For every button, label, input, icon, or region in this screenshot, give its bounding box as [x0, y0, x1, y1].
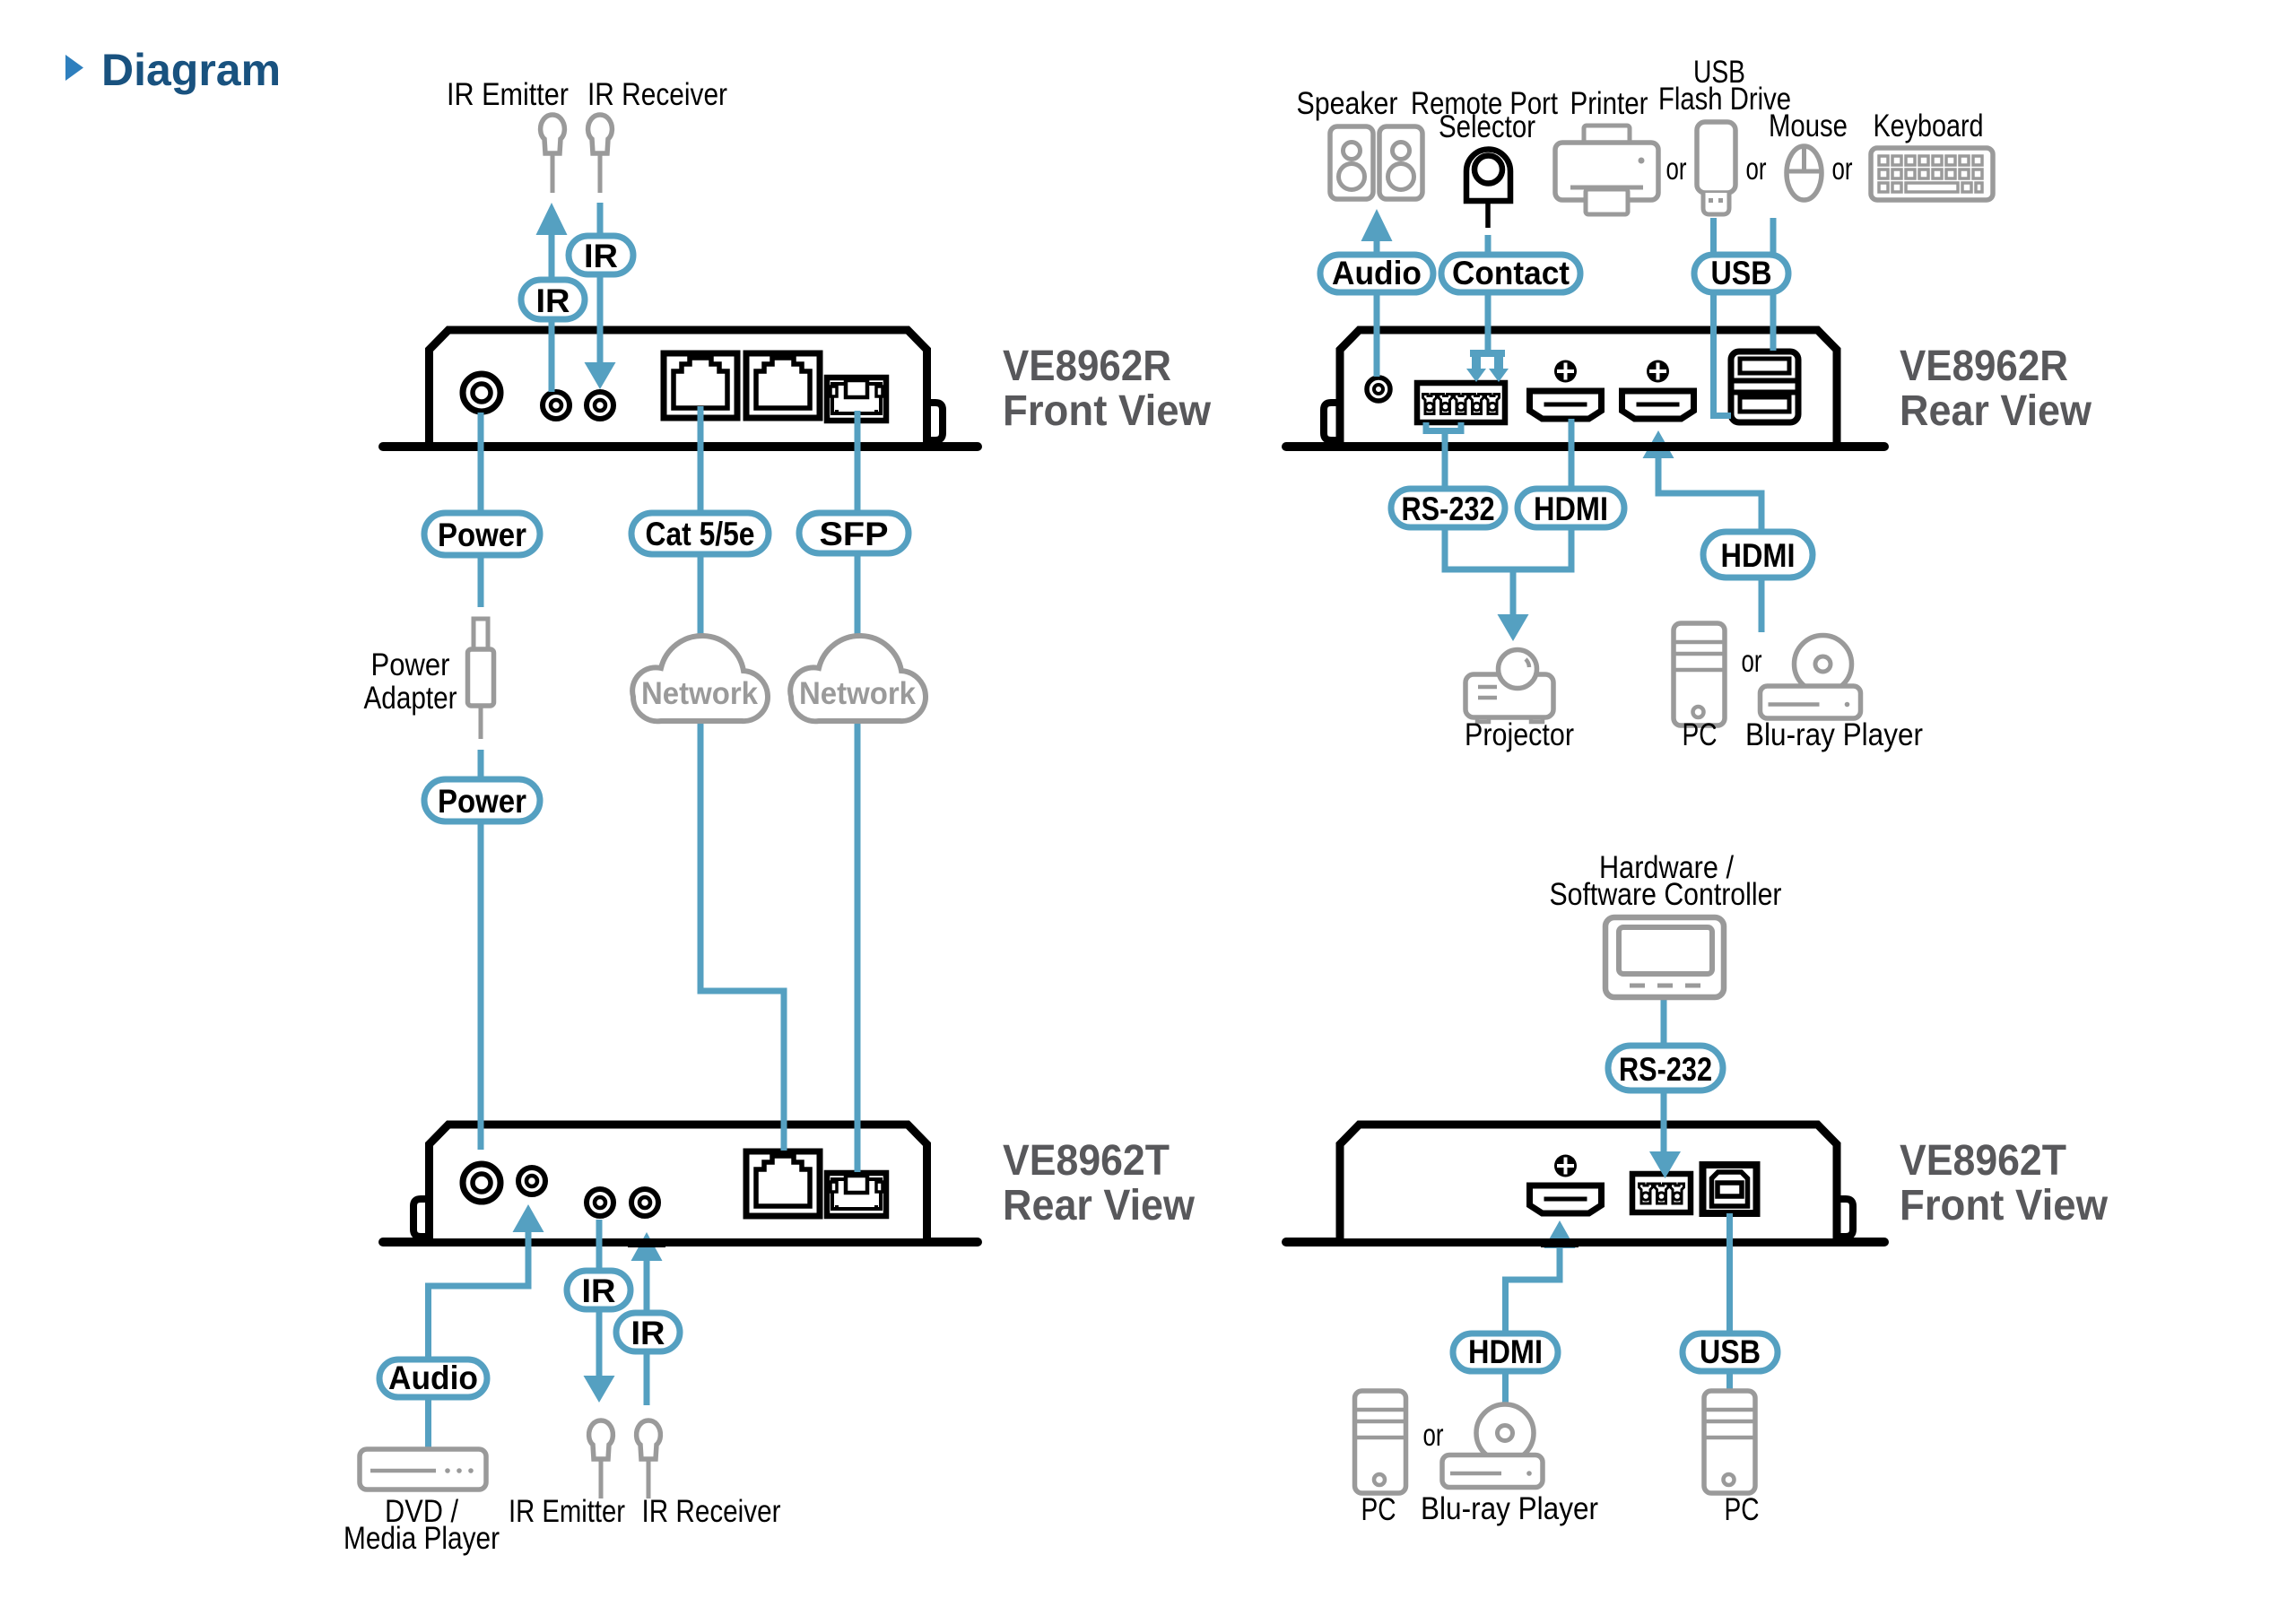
svg-text:RS-232: RS-232 — [1402, 491, 1495, 527]
svg-text:Cat 5/5e: Cat 5/5e — [646, 516, 755, 552]
svg-text:Software Controller: Software Controller — [1550, 877, 1782, 912]
svg-text:VE8962R: VE8962R — [1003, 343, 1171, 390]
svg-text:Rear View: Rear View — [1003, 1182, 1196, 1229]
svg-text:or: or — [1832, 152, 1853, 187]
svg-text:Adapter: Adapter — [364, 681, 457, 716]
svg-text:Blu-ray Player: Blu-ray Player — [1421, 1491, 1598, 1526]
svg-text:Printer: Printer — [1570, 86, 1648, 121]
svg-text:Rear View: Rear View — [1900, 387, 2092, 435]
svg-text:IR Emitter: IR Emitter — [509, 1494, 625, 1529]
svg-text:IR: IR — [584, 238, 618, 274]
svg-text:IR Receiver: IR Receiver — [587, 77, 727, 112]
svg-text:Media Player: Media Player — [344, 1521, 500, 1556]
svg-text:Audio: Audio — [1332, 255, 1422, 291]
svg-text:IR Receiver: IR Receiver — [642, 1494, 781, 1529]
svg-text:Network: Network — [799, 676, 916, 711]
svg-text:HDMI: HDMI — [1468, 1333, 1543, 1370]
svg-text:USB: USB — [1711, 255, 1772, 291]
svg-text:Power: Power — [438, 517, 526, 553]
svg-text:VE8962R: VE8962R — [1900, 343, 2068, 390]
svg-text:Contact: Contact — [1452, 255, 1570, 291]
svg-text:VE8962T: VE8962T — [1003, 1137, 1170, 1185]
svg-text:or: or — [1423, 1418, 1444, 1453]
svg-text:Front View: Front View — [1003, 387, 1212, 435]
svg-text:or: or — [1666, 152, 1687, 187]
svg-text:IR: IR — [631, 1315, 665, 1351]
svg-text:HDMI: HDMI — [1534, 491, 1608, 527]
svg-text:Blu-ray Player: Blu-ray Player — [1745, 717, 1923, 752]
svg-text:Mouse: Mouse — [1769, 109, 1848, 143]
svg-text:IR: IR — [582, 1273, 616, 1309]
svg-text:RS-232: RS-232 — [1619, 1051, 1712, 1088]
svg-text:HDMI: HDMI — [1721, 537, 1796, 574]
svg-text:PC: PC — [1683, 717, 1718, 752]
svg-text:IR: IR — [536, 282, 570, 319]
svg-text:Audio: Audio — [388, 1359, 478, 1396]
svg-text:Selector: Selector — [1439, 109, 1535, 144]
svg-text:or: or — [1746, 152, 1767, 187]
svg-text:Power: Power — [371, 647, 450, 682]
svg-text:Front View: Front View — [1900, 1182, 2109, 1229]
svg-text:Diagram: Diagram — [101, 45, 281, 95]
svg-text:IR Emitter: IR Emitter — [447, 77, 569, 112]
svg-text:PC: PC — [1361, 1492, 1396, 1527]
svg-text:Network: Network — [641, 676, 758, 711]
svg-text:Speaker: Speaker — [1297, 86, 1398, 121]
svg-text:Power: Power — [438, 783, 526, 820]
svg-text:Projector: Projector — [1465, 717, 1574, 752]
svg-text:VE8962T: VE8962T — [1900, 1137, 2066, 1185]
svg-text:PC: PC — [1725, 1492, 1760, 1527]
svg-text:Keyboard: Keyboard — [1874, 109, 1984, 143]
svg-text:USB: USB — [1700, 1333, 1761, 1370]
svg-text:SFP: SFP — [820, 516, 889, 552]
svg-text:or: or — [1742, 644, 1762, 679]
